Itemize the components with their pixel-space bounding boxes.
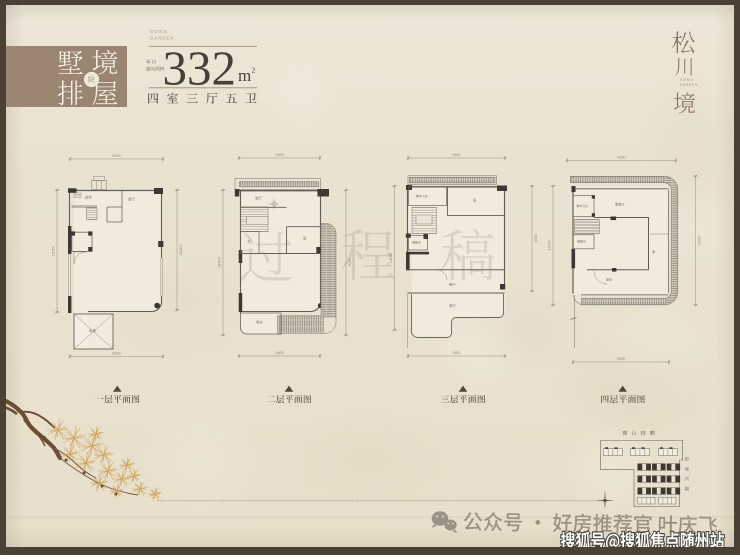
- svg-text:9400: 9400: [452, 153, 460, 157]
- svg-text:9400: 9400: [275, 351, 283, 355]
- svg-text:14050: 14050: [178, 245, 182, 255]
- svg-text:14400: 14400: [218, 257, 222, 267]
- svg-text:9400: 9400: [275, 153, 283, 157]
- svg-text:9400: 9400: [452, 351, 460, 355]
- svg-text:332: 332: [163, 41, 237, 96]
- svg-text:6000: 6000: [533, 234, 537, 242]
- svg-text:SONG: SONG: [680, 78, 694, 82]
- svg-text:13700: 13700: [52, 246, 56, 256]
- svg-text:GARDEN: GARDEN: [680, 83, 698, 87]
- svg-text:9000: 9000: [617, 357, 625, 361]
- svg-text:2: 2: [252, 66, 256, 75]
- svg-text:8000: 8000: [112, 352, 120, 356]
- svg-text:SONG: SONG: [150, 29, 169, 34]
- svg-text:9000: 9000: [617, 156, 625, 160]
- svg-text:12000: 12000: [548, 240, 552, 250]
- svg-text:12000: 12000: [697, 235, 701, 245]
- svg-text:m: m: [238, 66, 251, 85]
- svg-text:8000: 8000: [112, 154, 120, 158]
